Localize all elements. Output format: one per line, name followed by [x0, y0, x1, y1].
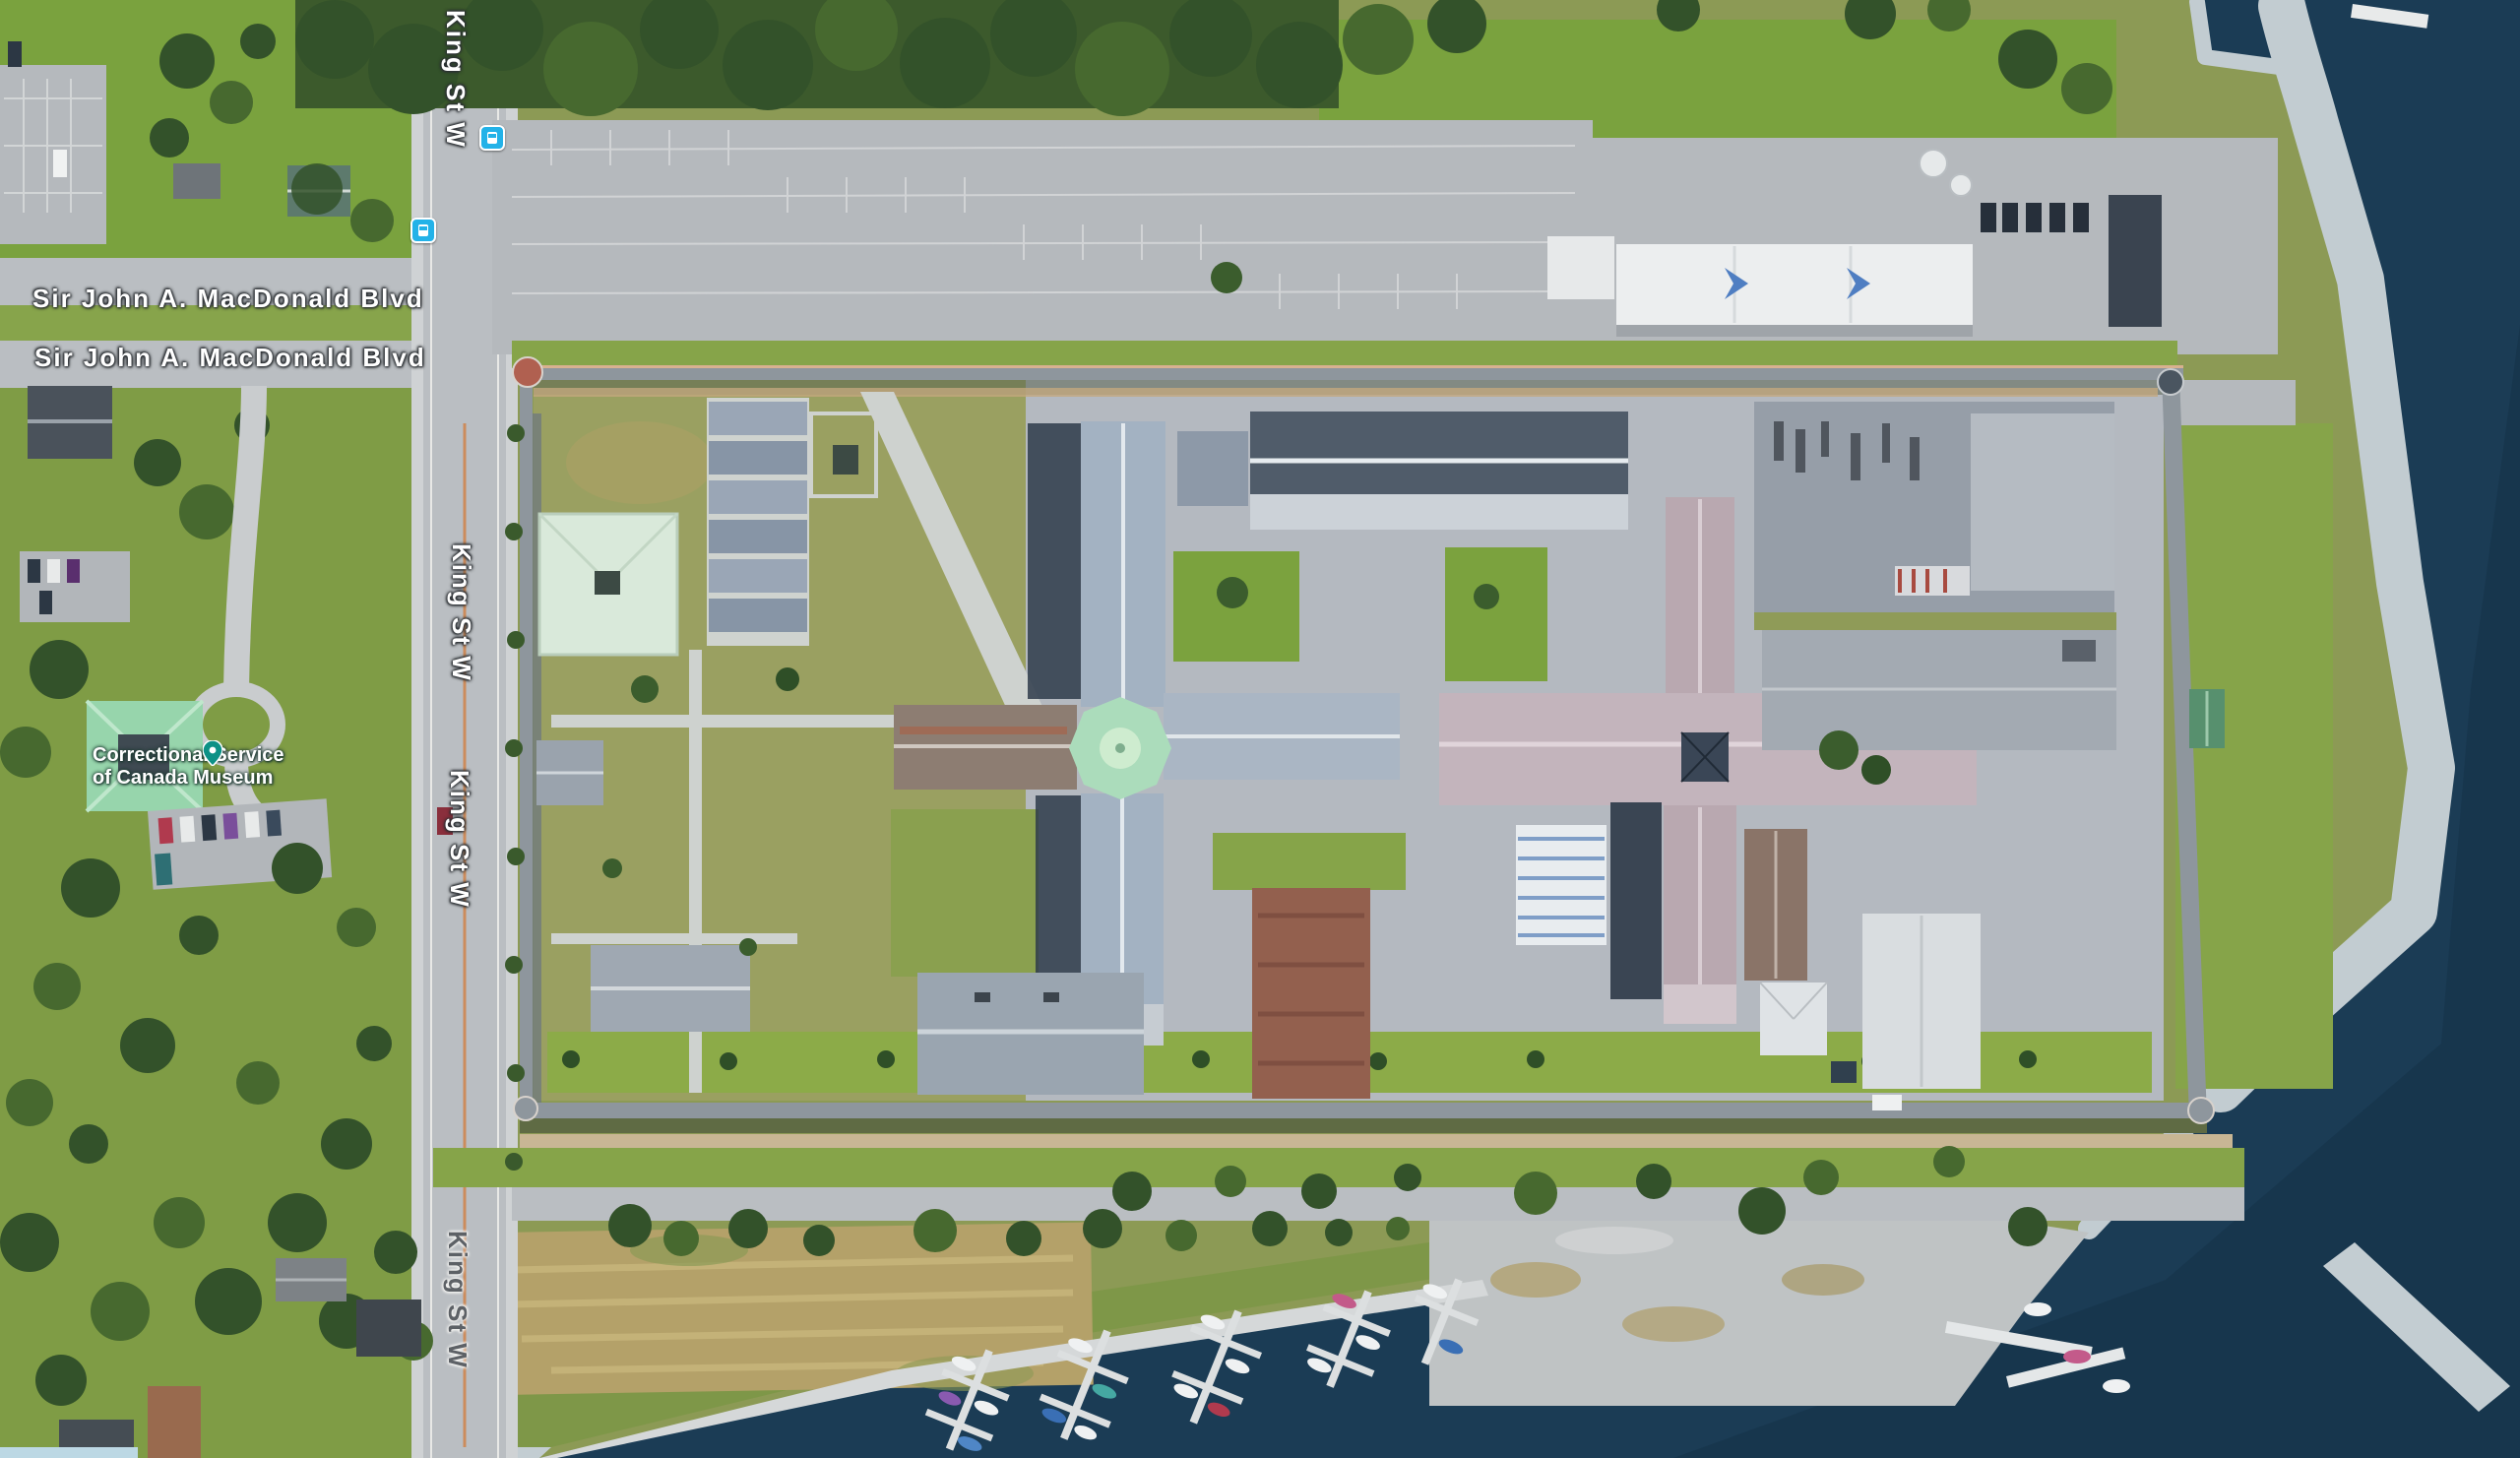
north-cellblock-building	[1250, 412, 1628, 530]
storage-tank	[1950, 174, 1972, 196]
south-perimeter-road	[512, 1187, 2244, 1221]
southeast-corner-tower	[2188, 1098, 2214, 1123]
car	[53, 150, 67, 177]
pool-strip	[0, 1447, 138, 1458]
dark-annex-building	[1610, 802, 1662, 999]
dark-building	[2109, 195, 2162, 327]
house	[173, 163, 220, 199]
bus-glyph	[418, 224, 428, 236]
satellite-map-canvas[interactable]: Sir John A. MacDonald Blvd Sir John A. M…	[0, 0, 2520, 1458]
car	[8, 41, 22, 67]
macdonald-blvd-median	[0, 305, 447, 341]
transit-stop-icon[interactable]	[410, 218, 436, 243]
car	[39, 591, 52, 614]
transit-stop-icon[interactable]	[479, 125, 505, 151]
northwest-corner-tower	[513, 357, 542, 387]
stacked-materials	[1516, 825, 1606, 945]
car	[47, 559, 60, 583]
north-parking-lot	[492, 120, 1593, 354]
house-orange-roof	[148, 1386, 201, 1458]
southwest-corner-tower	[514, 1097, 537, 1120]
museum-poi-label[interactable]: Correctional Service of Canada Museum	[93, 744, 284, 790]
truck	[1872, 1095, 1902, 1110]
bus-glyph	[487, 132, 497, 144]
museum-poi-label-line1: Correctional Service	[93, 744, 284, 767]
museum-pin-icon[interactable]	[203, 740, 222, 771]
storage-tank	[1920, 150, 1947, 177]
macdonald-blvd-north-lanes	[0, 258, 447, 305]
satellite-imagery	[0, 0, 2520, 1458]
car	[67, 559, 80, 583]
car	[28, 559, 40, 583]
car	[437, 807, 453, 835]
truck	[1831, 1061, 1857, 1083]
macdonald-blvd-south-lanes	[0, 341, 447, 388]
museum-poi-label-line2: of Canada Museum	[93, 767, 284, 790]
red-brick-building	[1252, 888, 1370, 1099]
house	[356, 1300, 421, 1357]
industrial-flat-roof-buildings	[1754, 402, 2116, 750]
northeast-corner-tower	[2158, 369, 2183, 395]
